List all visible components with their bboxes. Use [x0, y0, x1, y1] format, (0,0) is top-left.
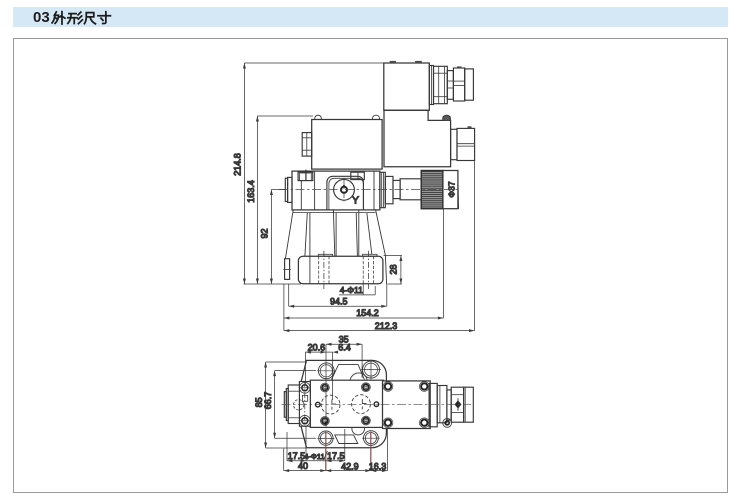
svg-text:212.3: 212.3	[375, 321, 398, 331]
svg-text:42.9: 42.9	[341, 461, 359, 471]
svg-text:4-Φ11: 4-Φ11	[304, 452, 324, 461]
svg-text:Y: Y	[352, 195, 359, 207]
svg-text:4-Φ11: 4-Φ11	[340, 285, 363, 295]
svg-text:66.7: 66.7	[263, 392, 273, 410]
svg-text:94.5: 94.5	[330, 296, 348, 306]
svg-text:40: 40	[298, 461, 308, 471]
svg-text:16.3: 16.3	[369, 461, 387, 471]
svg-text:17.5: 17.5	[327, 451, 345, 461]
svg-text:17.5: 17.5	[288, 451, 306, 461]
svg-text:28: 28	[388, 264, 398, 274]
svg-text:163.4: 163.4	[246, 180, 256, 203]
svg-text:20.6: 20.6	[308, 342, 326, 352]
svg-text:6.4: 6.4	[338, 343, 351, 353]
svg-text:214.8: 214.8	[233, 153, 243, 176]
svg-text:92: 92	[260, 228, 270, 238]
svg-text:154.2: 154.2	[356, 308, 379, 318]
